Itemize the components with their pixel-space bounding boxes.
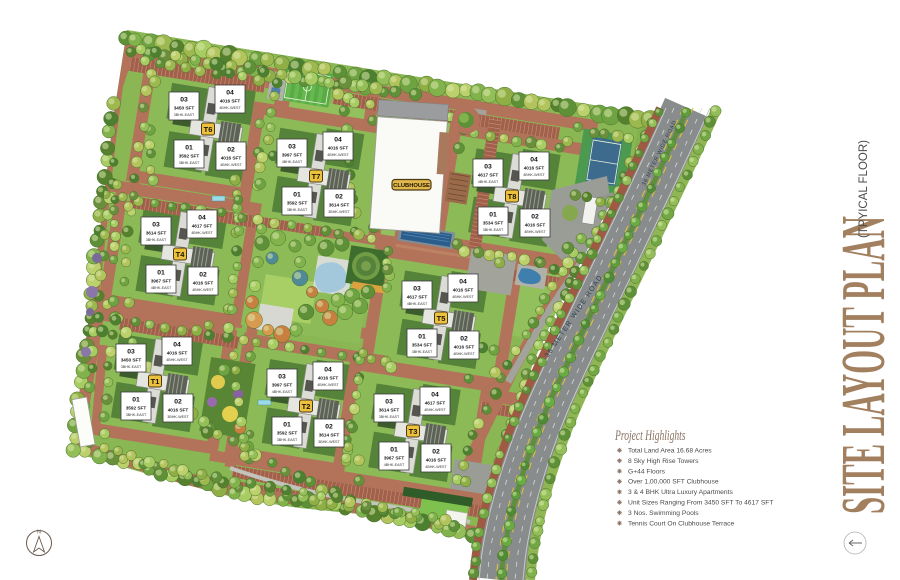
svg-text:3BHK-EAST: 3BHK-EAST — [277, 438, 298, 442]
svg-text:T4: T4 — [176, 250, 186, 259]
svg-text:4BHK-WEST: 4BHK-WEST — [166, 358, 188, 362]
svg-text:02: 02 — [199, 272, 207, 279]
svg-text:3592 SFT: 3592 SFT — [287, 201, 308, 206]
svg-text:01: 01 — [293, 192, 301, 199]
svg-text:4BHK-WEST: 4BHK-WEST — [453, 352, 475, 356]
svg-text:02: 02 — [531, 214, 539, 221]
svg-text:4617 SFT: 4617 SFT — [407, 295, 428, 300]
svg-text:02: 02 — [227, 147, 235, 154]
svg-text:T6: T6 — [204, 125, 213, 134]
svg-text:3 & 4 BHK Ultra Luxury Apartme: 3 & 4 BHK Ultra Luxury Apartments — [628, 489, 733, 496]
svg-text:03: 03 — [278, 374, 286, 381]
svg-text:3450 SFT: 3450 SFT — [121, 358, 142, 363]
svg-text:3BHK-EAST: 3BHK-EAST — [174, 113, 195, 117]
svg-text:3BHK-WEST: 3BHK-WEST — [167, 415, 189, 419]
svg-text:4016 SFT: 4016 SFT — [221, 156, 242, 161]
svg-text:4016 SFT: 4016 SFT — [525, 223, 546, 228]
svg-text:03: 03 — [127, 349, 135, 356]
svg-text:02: 02 — [174, 399, 182, 406]
svg-text:04: 04 — [431, 392, 439, 399]
svg-text:4BHK-WEST: 4BHK-WEST — [424, 408, 446, 412]
svg-text:03: 03 — [180, 97, 188, 104]
svg-text:4BHK-EAST: 4BHK-EAST — [478, 180, 499, 184]
svg-text:3592 SFT: 3592 SFT — [126, 406, 147, 411]
svg-text:4BHK-WEST: 4BHK-WEST — [452, 295, 474, 299]
svg-text:01: 01 — [283, 422, 291, 429]
svg-text:3BHK-WEST: 3BHK-WEST — [318, 440, 340, 444]
svg-text:4016 SFT: 4016 SFT — [328, 146, 349, 151]
svg-text:Project Highlights: Project Highlights — [614, 427, 685, 444]
svg-text:Tennis Court On Clubhouse Terr: Tennis Court On Clubhouse Terrace — [628, 520, 734, 527]
svg-text:02: 02 — [325, 424, 333, 431]
svg-text:4016 SFT: 4016 SFT — [168, 408, 189, 413]
svg-text:3BHK-EAST: 3BHK-EAST — [412, 350, 433, 354]
svg-text:4BHK-WEST: 4BHK-WEST — [523, 173, 545, 177]
svg-text:SITE LAYOUT PLAN: SITE LAYOUT PLAN — [828, 216, 898, 514]
svg-text:T7: T7 — [312, 172, 321, 181]
svg-text:3997 SFT: 3997 SFT — [282, 153, 303, 158]
svg-text:3BHK-EAST: 3BHK-EAST — [179, 161, 200, 165]
svg-text:3BHK-EAST: 3BHK-EAST — [121, 365, 142, 369]
svg-text:3450 SFT: 3450 SFT — [174, 106, 195, 111]
svg-text:3592 SFT: 3592 SFT — [179, 154, 200, 159]
svg-text:04: 04 — [198, 215, 206, 222]
svg-text:03: 03 — [288, 144, 296, 151]
svg-text:N: N — [37, 530, 41, 536]
svg-text:T5: T5 — [437, 314, 446, 323]
svg-text:3BHK-EAST: 3BHK-EAST — [126, 413, 147, 417]
svg-text:02: 02 — [460, 336, 468, 343]
svg-text:Unit Sizes Ranging From 3450 S: Unit Sizes Ranging From 3450 SFT To 4617… — [628, 500, 773, 507]
svg-text:04: 04 — [173, 342, 181, 349]
svg-text:4617 SFT: 4617 SFT — [478, 173, 499, 178]
svg-text:01: 01 — [489, 212, 497, 219]
svg-text:4016 SFT: 4016 SFT — [524, 166, 545, 171]
svg-text:4BHK-EAST: 4BHK-EAST — [407, 302, 428, 306]
svg-text:3BHK-EAST: 3BHK-EAST — [379, 415, 400, 419]
svg-text:4BHK-WEST: 4BHK-WEST — [191, 231, 213, 235]
svg-text:3BHK-EAST: 3BHK-EAST — [287, 208, 308, 212]
svg-text:3534 SFT: 3534 SFT — [483, 221, 504, 226]
svg-text:01: 01 — [132, 397, 140, 404]
svg-text:01: 01 — [157, 270, 165, 277]
svg-text:8 Sky High Rise Towers: 8 Sky High Rise Towers — [628, 458, 699, 465]
svg-text:3BHK-EAST: 3BHK-EAST — [146, 238, 167, 242]
svg-text:03: 03 — [413, 286, 421, 293]
svg-text:T8: T8 — [508, 192, 517, 201]
svg-text:03: 03 — [484, 164, 492, 171]
svg-text:4016 SFT: 4016 SFT — [193, 281, 214, 286]
svg-text:3967 SFT: 3967 SFT — [151, 279, 172, 284]
svg-text:4016 SFT: 4016 SFT — [167, 351, 188, 356]
svg-text:4BHK-WEST: 4BHK-WEST — [317, 383, 339, 387]
svg-text:4BHK-EAST: 4BHK-EAST — [151, 286, 172, 290]
svg-text:4617 SFT: 4617 SFT — [192, 224, 213, 229]
svg-text:4BHK-WEST: 4BHK-WEST — [524, 230, 546, 234]
svg-text:3592 SFT: 3592 SFT — [277, 431, 298, 436]
svg-text:04: 04 — [324, 367, 332, 374]
svg-text:4016 SFT: 4016 SFT — [318, 376, 339, 381]
svg-text:4BHK-EAST: 4BHK-EAST — [282, 160, 303, 164]
svg-text:3967 SFT: 3967 SFT — [384, 456, 405, 461]
svg-text:4016 SFT: 4016 SFT — [426, 458, 447, 463]
svg-text:04: 04 — [459, 279, 467, 286]
svg-text:3 Nos. Swimming Pools: 3 Nos. Swimming Pools — [628, 510, 699, 517]
svg-text:3614 SFT: 3614 SFT — [329, 203, 350, 208]
svg-text:4016 SFT: 4016 SFT — [453, 288, 474, 293]
svg-text:4BHK-WEST: 4BHK-WEST — [192, 288, 214, 292]
svg-text:3BHK-EAST: 3BHK-EAST — [483, 228, 504, 232]
svg-text:4BHK-WEST: 4BHK-WEST — [220, 163, 242, 167]
svg-text:T2: T2 — [302, 402, 311, 411]
svg-text:4BHK-WEST: 4BHK-WEST — [425, 465, 447, 469]
svg-text:04: 04 — [334, 137, 342, 144]
svg-text:(TPYICAL FLOOR): (TPYICAL FLOOR) — [858, 140, 870, 238]
svg-text:Over 1,00,000 SFT Clubhouse: Over 1,00,000 SFT Clubhouse — [628, 479, 719, 486]
svg-text:3997 SFT: 3997 SFT — [272, 383, 293, 388]
svg-text:3534 SFT: 3534 SFT — [412, 343, 433, 348]
svg-text:03: 03 — [385, 399, 393, 406]
svg-text:4BHK-EAST: 4BHK-EAST — [272, 390, 293, 394]
svg-text:3BHK-WEST: 3BHK-WEST — [328, 210, 350, 214]
svg-text:4617 SFT: 4617 SFT — [425, 401, 446, 406]
svg-text:Total Land Area 16.68 Acres: Total Land Area 16.68 Acres — [628, 448, 712, 455]
svg-text:G+44 Floors: G+44 Floors — [628, 468, 666, 475]
svg-text:02: 02 — [335, 194, 343, 201]
svg-text:01: 01 — [185, 145, 193, 152]
svg-text:4BHK-EAST: 4BHK-EAST — [384, 463, 405, 467]
svg-text:CLUBHOUSE: CLUBHOUSE — [393, 183, 430, 189]
svg-text:4016 SFT: 4016 SFT — [220, 99, 241, 104]
svg-text:03: 03 — [152, 222, 160, 229]
svg-text:01: 01 — [418, 334, 426, 341]
svg-text:01: 01 — [390, 447, 398, 454]
svg-text:3614 SFT: 3614 SFT — [379, 408, 400, 413]
svg-text:T1: T1 — [151, 377, 160, 386]
svg-text:4BHK-WEST: 4BHK-WEST — [327, 153, 349, 157]
svg-text:4016 SFT: 4016 SFT — [454, 345, 475, 350]
svg-text:04: 04 — [226, 90, 234, 97]
svg-text:3614 SFT: 3614 SFT — [319, 433, 340, 438]
svg-text:3614 SFT: 3614 SFT — [146, 231, 167, 236]
svg-text:T3: T3 — [409, 427, 418, 436]
svg-text:02: 02 — [432, 449, 440, 456]
svg-text:04: 04 — [530, 157, 538, 164]
svg-text:4BHK-WEST: 4BHK-WEST — [219, 106, 241, 110]
